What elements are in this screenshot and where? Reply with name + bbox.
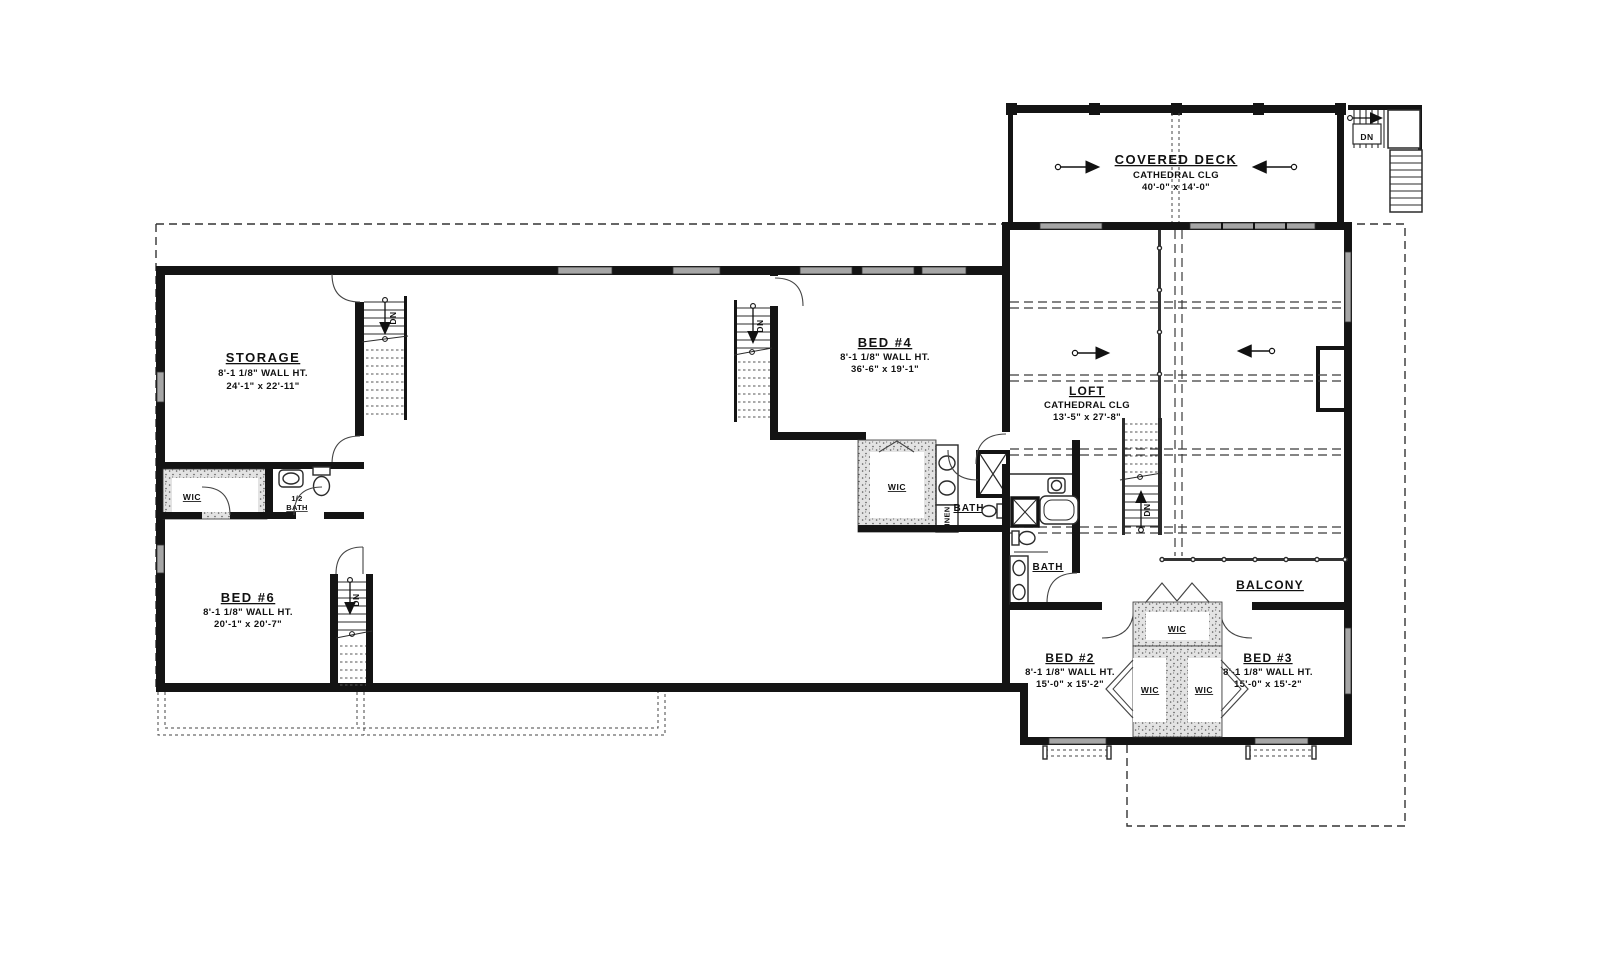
storage-wall-ht: 8'-1 1/8" WALL HT. <box>218 368 308 379</box>
shared-bath-label: BATH <box>1032 562 1063 573</box>
bed4-stairs: DN <box>734 300 772 422</box>
wic-cluster: WIC WIC WIC <box>1106 583 1248 737</box>
loft-ceiling: CATHEDRAL CLG <box>1044 400 1130 411</box>
covered-deck-ceiling: CATHEDRAL CLG <box>1133 170 1219 181</box>
bed4-room: BED #4 8'-1 1/8" WALL HT. 36'-6" x 19'-1… <box>770 266 930 440</box>
shared-bath-vanity <box>1010 556 1028 604</box>
bed4-dims: 36'-6" x 19'-1" <box>851 364 919 375</box>
wic-top-label: WIC <box>1168 624 1186 634</box>
bed4-stairs-dn-label: DN <box>755 319 765 332</box>
bed4-bath-label: BATH <box>953 503 984 514</box>
bed6-stairs: DN <box>336 547 373 690</box>
storage-stairs: DN <box>362 296 408 420</box>
bed4-wic-label: WIC <box>888 482 906 492</box>
shared-bath-toilet <box>1012 531 1035 545</box>
balcony-label: BALCONY <box>1236 578 1304 592</box>
half-bath-label-2: BATH <box>286 503 307 512</box>
covered-deck-dims: 40'-0" x 14'-0" <box>1142 182 1210 193</box>
bed2-label: BED #2 <box>1045 651 1094 665</box>
storage-dims: 24'-1" x 22'-11" <box>226 381 299 392</box>
deck-stairs: DN <box>1348 105 1422 212</box>
shared-bath-tub <box>1040 496 1078 524</box>
floor-plan-page: COVERED DECK CATHEDRAL CLG 40'-0" x 14'-… <box>0 0 1600 956</box>
bed3-label: BED #3 <box>1243 651 1292 665</box>
bed4-wic-bath: WIC LINEN BATH <box>858 440 1010 532</box>
bed4-bath-vanity <box>936 445 958 505</box>
wic-bed3-label: WIC <box>1195 685 1213 695</box>
bed2-wall-ht: 8'-1 1/8" WALL HT. <box>1025 667 1115 678</box>
loft-stairs-dn-label: DN <box>1142 503 1152 516</box>
bed6-room: BED #6 8'-1 1/8" WALL HT. 20'-1" x 20'-7… <box>203 574 338 690</box>
loft-stairs: DN <box>1120 418 1162 535</box>
half-bath-sink <box>279 470 303 487</box>
bed4-bath-toilet <box>982 504 1004 518</box>
covered-deck: COVERED DECK CATHEDRAL CLG 40'-0" x 14'-… <box>1006 103 1346 222</box>
wic-bed2-label: WIC <box>1141 685 1159 695</box>
bed4-label: BED #4 <box>858 335 913 350</box>
storage-stairs-dn-label: DN <box>388 311 398 324</box>
bed6-wall-ht: 8'-1 1/8" WALL HT. <box>203 607 293 618</box>
shared-bath-sink-top <box>1048 478 1065 493</box>
storage-label: STORAGE <box>226 350 301 365</box>
bed6-dims: 20'-1" x 20'-7" <box>214 619 282 630</box>
floor-plan-canvas: COVERED DECK CATHEDRAL CLG 40'-0" x 14'-… <box>0 0 1600 956</box>
wic-halfbath-band: WIC 1/2 BATH <box>156 462 364 519</box>
loft-label: LOFT <box>1069 384 1105 398</box>
deck-stairs-dn-label: DN <box>1360 132 1373 142</box>
shared-bath: BATH <box>1010 440 1080 604</box>
covered-deck-label: COVERED DECK <box>1115 152 1238 167</box>
loft-dims: 13'-5" x 27'-8" <box>1053 412 1121 423</box>
half-bath-toilet <box>313 467 330 496</box>
shared-bath-shower <box>1012 498 1038 526</box>
stair-landing <box>1388 110 1420 148</box>
fireplace <box>1318 348 1346 410</box>
wic-left-label: WIC <box>183 492 201 502</box>
loft-railing <box>1158 230 1161 418</box>
bed6-label: BED #6 <box>221 590 276 605</box>
storage-room: STORAGE 8'-1 1/8" WALL HT. 24'-1" x 22'-… <box>218 266 364 464</box>
bed6-stairs-dn-label: DN <box>351 593 361 606</box>
loft-direction-arrows <box>1072 348 1274 355</box>
bed2-dims: 15'-0" x 15'-2" <box>1036 679 1104 690</box>
bed4-wall-ht: 8'-1 1/8" WALL HT. <box>840 352 930 363</box>
